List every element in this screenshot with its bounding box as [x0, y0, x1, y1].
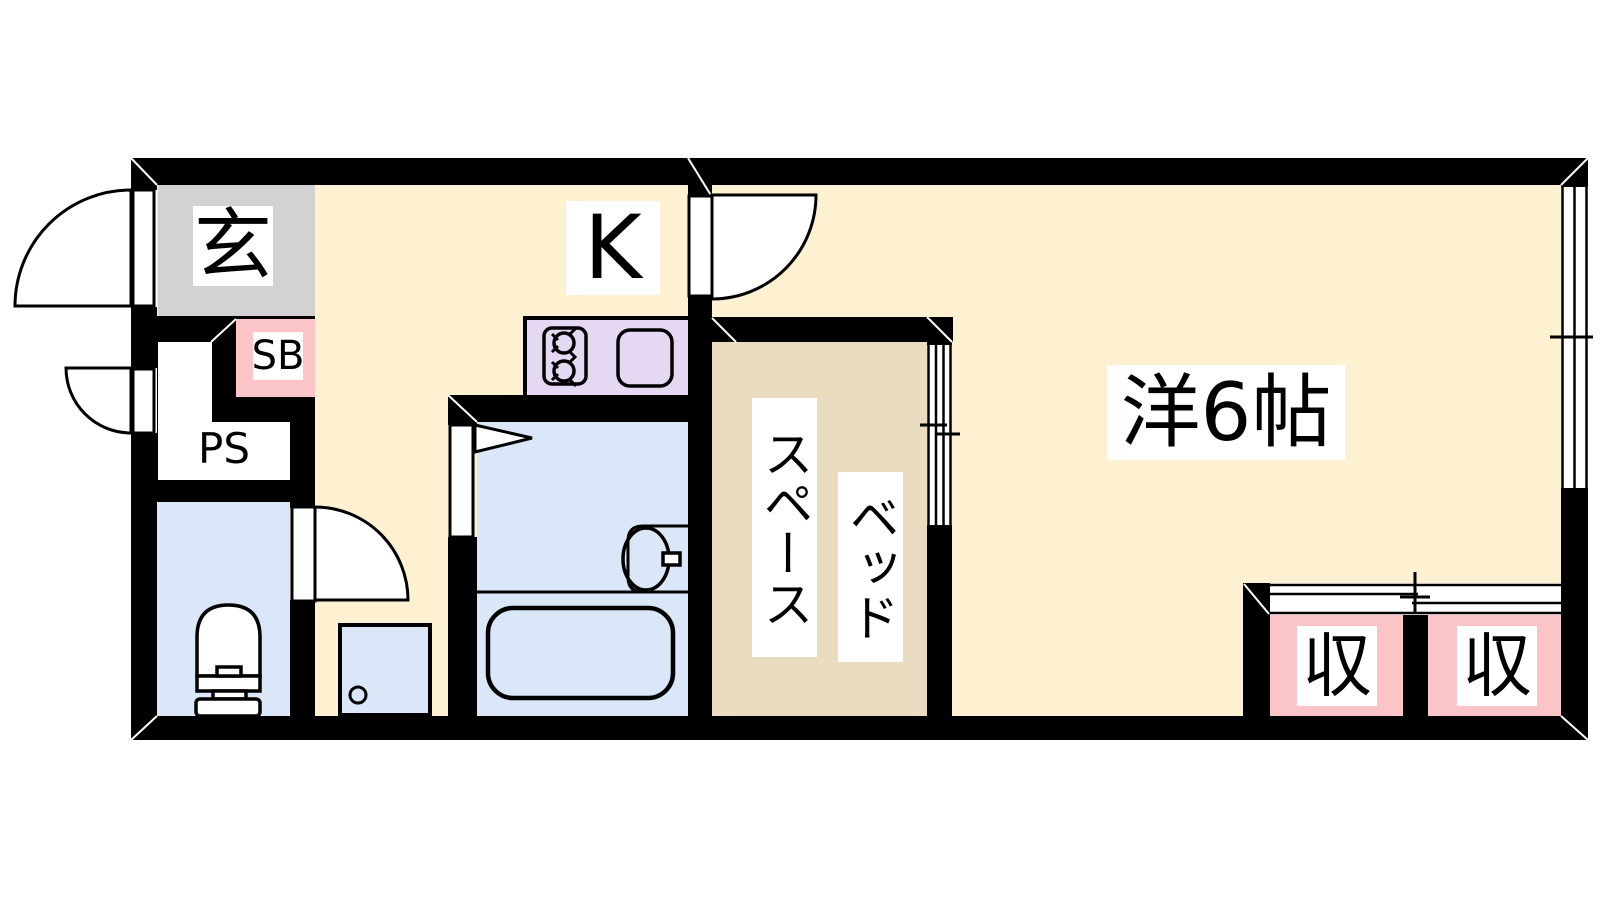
washing-machine-pan-icon — [340, 625, 430, 715]
kitchen-counter-icon — [525, 318, 690, 397]
service-door-icon — [66, 368, 154, 433]
closet-left-label: 収 — [1297, 626, 1377, 706]
toilet-icon — [196, 605, 260, 716]
floorplan-page: 玄 SB PS K 洋6帖 スペース ベッド 収 収 — [0, 0, 1600, 900]
pipe-space-label: PS — [198, 427, 250, 471]
kitchen-label: K — [566, 201, 660, 295]
western-room-label: 洋6帖 — [1107, 365, 1345, 460]
shoe-box-label: SB — [253, 332, 303, 380]
genkan-label: 玄 — [193, 206, 273, 286]
entrance-door-icon — [15, 190, 154, 306]
sink-tap-icon — [663, 553, 680, 565]
bed-space-label-space: スペース — [752, 398, 817, 657]
bed-space-label-bed: ベッド — [838, 472, 903, 662]
closet-right-label: 収 — [1457, 626, 1537, 706]
